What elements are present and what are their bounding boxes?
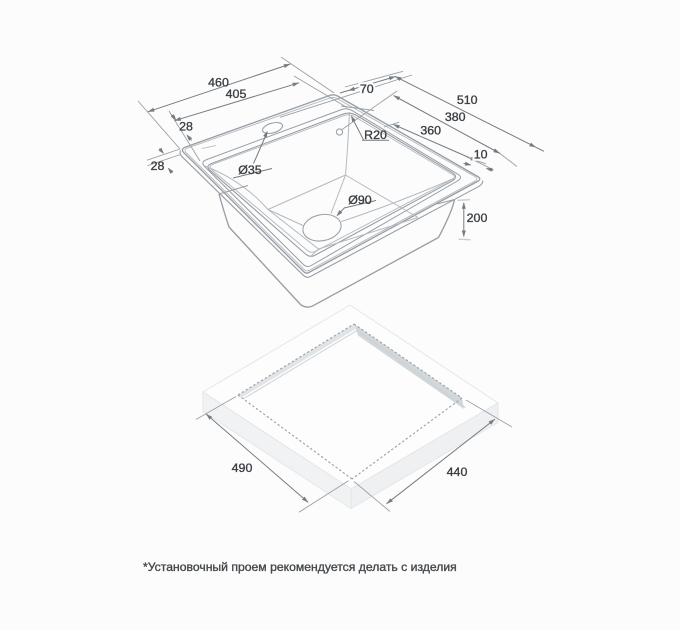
svg-text:Ø35: Ø35 — [238, 163, 262, 177]
svg-text:28: 28 — [151, 159, 165, 173]
svg-text:*Установочный проем рекомендуе: *Установочный проем рекомендуется делать… — [143, 560, 457, 574]
svg-text:490: 490 — [232, 461, 253, 475]
svg-text:360: 360 — [420, 124, 441, 138]
svg-text:405: 405 — [226, 87, 247, 101]
svg-text:28: 28 — [179, 120, 193, 134]
svg-text:Ø90: Ø90 — [348, 193, 372, 207]
svg-text:R20: R20 — [364, 128, 387, 142]
svg-text:510: 510 — [457, 93, 478, 107]
svg-text:200: 200 — [467, 211, 488, 225]
svg-text:70: 70 — [360, 82, 374, 96]
svg-text:440: 440 — [447, 465, 468, 479]
svg-text:10: 10 — [474, 147, 488, 161]
svg-text:380: 380 — [445, 110, 466, 124]
